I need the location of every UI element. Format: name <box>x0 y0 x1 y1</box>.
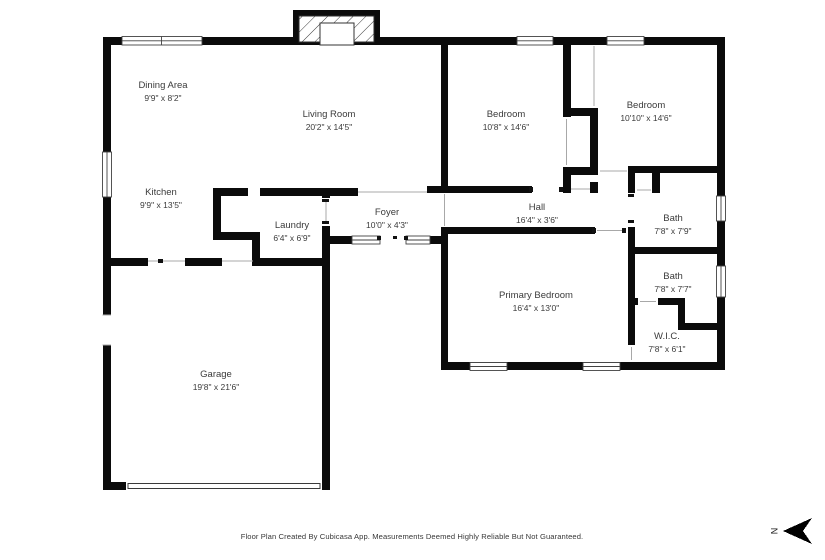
room-label-hall: Hall 16'4" x 3'6" <box>516 202 558 226</box>
garage-door <box>128 484 320 489</box>
room-name: Kitchen <box>140 187 182 199</box>
room-name: Foyer <box>366 207 408 219</box>
room-dimensions: 9'9" x 13'5" <box>140 200 182 211</box>
room-label-bedroom-2: Bedroom 10'10" x 14'6" <box>620 100 671 124</box>
room-label-laundry: Laundry 6'4" x 6'9" <box>273 220 310 244</box>
room-dimensions: 9'9" x 8'2" <box>138 93 187 104</box>
door-openings <box>102 235 406 491</box>
room-dimensions: 10'10" x 14'6" <box>620 113 671 124</box>
room-name: Dining Area <box>138 80 187 92</box>
room-label-dining-area: Dining Area 9'9" x 8'2" <box>138 80 187 104</box>
room-dimensions: 6'4" x 6'9" <box>273 233 310 244</box>
room-label-garage: Garage 19'8" x 21'6" <box>193 369 240 393</box>
room-name: Bedroom <box>620 100 671 112</box>
room-label-bedroom-1: Bedroom 10'8" x 14'6" <box>483 109 530 133</box>
room-dimensions: 10'8" x 14'6" <box>483 122 530 133</box>
room-dimensions: 19'8" x 21'6" <box>193 382 240 393</box>
fireplace-chimney <box>293 10 380 45</box>
room-name: Hall <box>516 202 558 214</box>
room-label-foyer: Foyer 10'0" x 4'3" <box>366 207 408 231</box>
room-label-bath-1: Bath 7'8" x 7'9" <box>654 213 691 237</box>
room-dimensions: 7'8" x 7'7" <box>654 284 691 295</box>
room-name: Living Room <box>303 109 356 121</box>
room-label-bath-2: Bath 7'8" x 7'7" <box>654 271 691 295</box>
room-label-kitchen: Kitchen 9'9" x 13'5" <box>140 187 182 211</box>
compass: N <box>769 518 812 544</box>
room-label-primary-bedroom: Primary Bedroom 16'4" x 13'0" <box>499 290 573 314</box>
room-name: Laundry <box>273 220 310 232</box>
room-dimensions: 7'8" x 6'1" <box>648 344 685 355</box>
room-name: Bath <box>654 271 691 283</box>
floorplan-page: N Dining Area 9'9" x 8'2" Living Room 20… <box>0 0 825 560</box>
footer-credit: Floor Plan Created By Cubicasa App. Meas… <box>241 532 584 541</box>
north-arrow-icon <box>783 518 812 544</box>
room-name: Garage <box>193 369 240 381</box>
room-name: W.I.C. <box>648 331 685 343</box>
room-dimensions: 20'2" x 14'5" <box>303 122 356 133</box>
room-label-living-room: Living Room 20'2" x 14'5" <box>303 109 356 133</box>
room-name: Bedroom <box>483 109 530 121</box>
room-dimensions: 16'4" x 3'6" <box>516 215 558 226</box>
room-name: Primary Bedroom <box>499 290 573 302</box>
room-label-wic: W.I.C. 7'8" x 6'1" <box>648 331 685 355</box>
room-dimensions: 7'8" x 7'9" <box>654 226 691 237</box>
room-dimensions: 16'4" x 13'0" <box>499 303 573 314</box>
floorplan-canvas: N <box>0 0 825 560</box>
garage-side-opening <box>102 315 112 345</box>
room-dimensions: 10'0" x 4'3" <box>366 220 408 231</box>
room-name: Bath <box>654 213 691 225</box>
compass-north-label: N <box>769 528 779 535</box>
